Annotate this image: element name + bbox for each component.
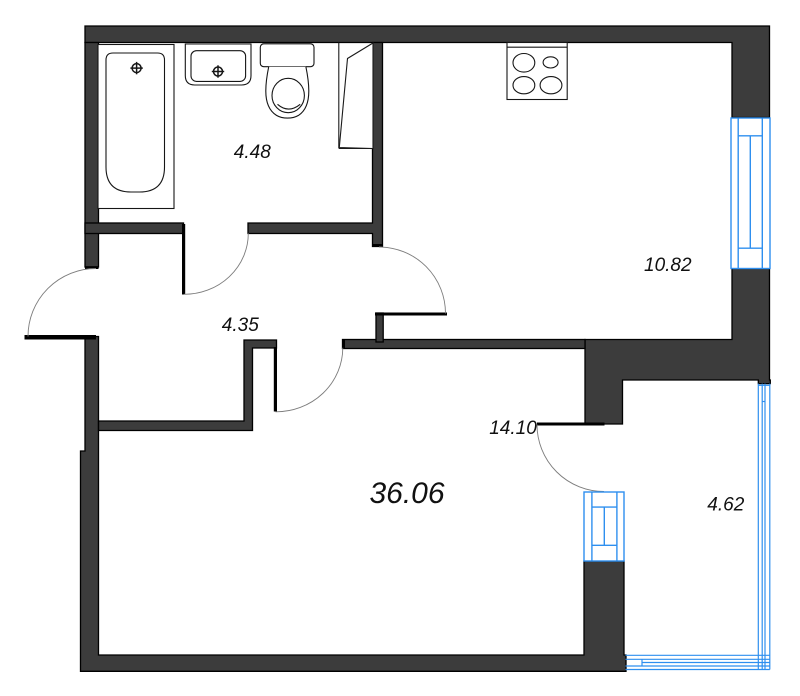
svg-text:10.82: 10.82 xyxy=(644,255,692,276)
svg-text:4.62: 4.62 xyxy=(707,495,744,516)
svg-text:4.48: 4.48 xyxy=(234,142,271,163)
svg-text:36.06: 36.06 xyxy=(369,477,444,510)
svg-text:14.10: 14.10 xyxy=(489,418,537,439)
svg-text:4.35: 4.35 xyxy=(222,315,259,336)
